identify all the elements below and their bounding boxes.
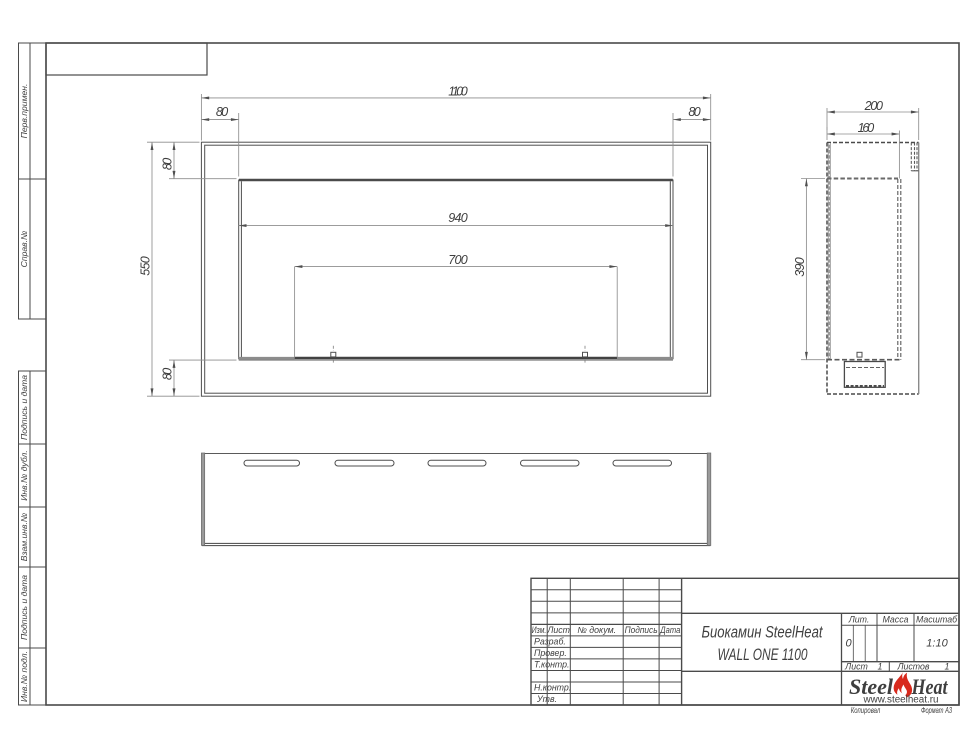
svg-text:700: 700: [448, 253, 468, 267]
svg-text:80: 80: [688, 105, 700, 119]
svg-text:Утв.: Утв.: [536, 694, 557, 704]
svg-text:Дата: Дата: [659, 625, 680, 635]
svg-text:Лист: Лист: [844, 661, 868, 671]
svg-text:Копировал: Копировал: [851, 706, 881, 715]
svg-text:550: 550: [139, 256, 153, 276]
svg-text:80: 80: [161, 368, 175, 380]
svg-text:Лит.: Лит.: [848, 615, 870, 625]
svg-text:Перв.примен.: Перв.примен.: [19, 84, 29, 139]
svg-text:Подпись: Подпись: [625, 625, 658, 635]
svg-text:200: 200: [864, 99, 883, 113]
svg-text:Лист: Лист: [546, 625, 570, 635]
svg-text:www.steelheat.ru: www.steelheat.ru: [862, 695, 938, 706]
svg-text:№ докум.: № докум.: [577, 625, 616, 635]
svg-text:Масса: Масса: [882, 615, 908, 625]
svg-text:Формат А3: Формат А3: [921, 706, 952, 715]
svg-text:Подпись и дата: Подпись и дата: [19, 575, 29, 640]
svg-text:Инв.№ дубл.: Инв.№ дубл.: [19, 450, 29, 500]
svg-text:390: 390: [793, 257, 807, 277]
svg-text:WALL ONE 1100: WALL ONE 1100: [718, 646, 809, 664]
svg-text:Провер.: Провер.: [534, 648, 567, 658]
svg-text:Инв.№ подл.: Инв.№ подл.: [19, 651, 29, 702]
svg-text:1: 1: [945, 661, 950, 671]
svg-text:Подпись и дата: Подпись и дата: [19, 375, 29, 440]
svg-text:Масштаб: Масштаб: [916, 615, 958, 625]
svg-text:80: 80: [216, 105, 228, 119]
svg-text:Н.контр.: Н.контр.: [534, 683, 571, 693]
svg-text:80: 80: [161, 158, 175, 170]
svg-text:Взам.инв.№: Взам.инв.№: [19, 513, 29, 561]
svg-text:Т.контр.: Т.контр.: [534, 659, 570, 669]
svg-text:Разраб.: Разраб.: [534, 636, 566, 646]
svg-text:1:10: 1:10: [926, 638, 948, 650]
svg-text:160: 160: [858, 121, 875, 135]
svg-text:1: 1: [878, 661, 883, 671]
svg-text:Изм.: Изм.: [532, 625, 547, 635]
svg-text:940: 940: [448, 211, 468, 225]
svg-text:Справ.№: Справ.№: [19, 231, 29, 268]
svg-text:0: 0: [846, 638, 853, 650]
svg-text:Листов: Листов: [896, 661, 929, 671]
svg-text:1100: 1100: [448, 84, 468, 98]
svg-text:Биокамин SteelHeat: Биокамин SteelHeat: [702, 624, 824, 642]
